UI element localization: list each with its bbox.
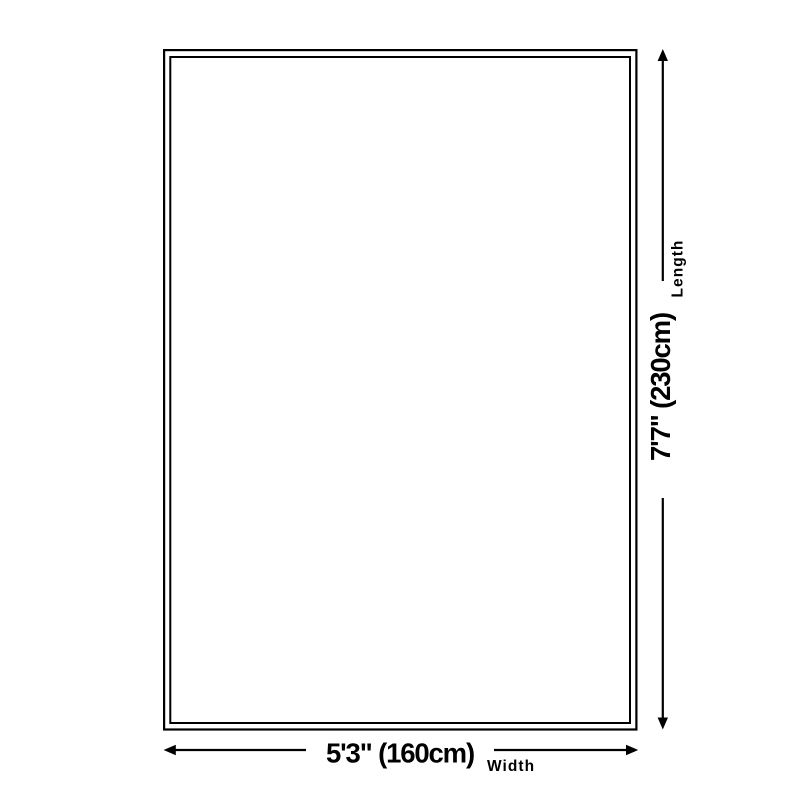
svg-text:Width: Width	[487, 758, 535, 775]
svg-text:7'7" (230cm): 7'7" (230cm)	[645, 313, 676, 461]
svg-text:Length: Length	[670, 240, 687, 298]
svg-text:5'3" (160cm): 5'3" (160cm)	[326, 738, 474, 769]
